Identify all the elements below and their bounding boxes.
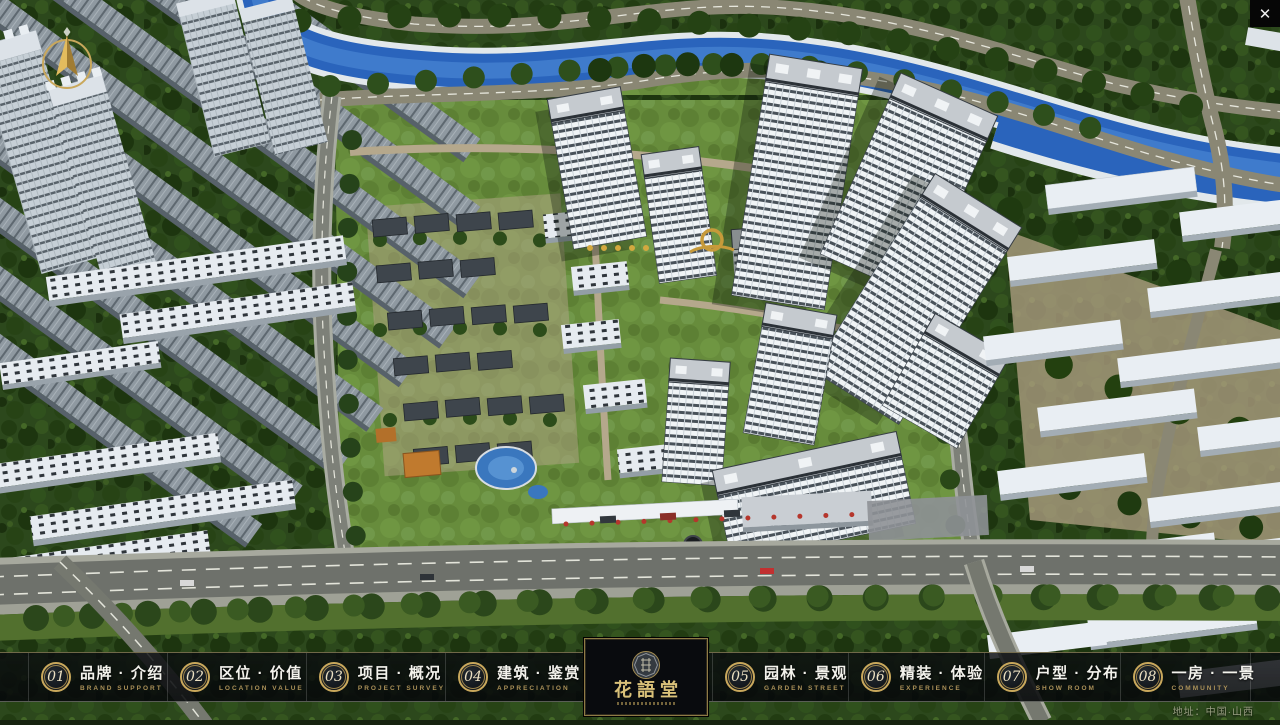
masterplan-3d-render[interactable] [0,0,1280,720]
logo-tagline-decoration [617,702,675,705]
nav-item-architecture[interactable]: 04 建筑 · 鉴赏 APPRECIATION [445,653,584,701]
logo-seal-icon [631,650,661,680]
nav-title: 区位 · 价值 [219,662,304,683]
nav-group-right: 05 园林 · 景观 GARDEN STREET 06 精装 · 体验 EXPE… [712,653,1251,701]
nav-number-badge: 07 [997,662,1027,692]
nav-title: 一房 · 一景 [1172,662,1256,683]
nav-item-experience[interactable]: 06 精装 · 体验 EXPERIENCE [848,653,984,701]
nav-title: 户型 · 分布 [1036,662,1120,683]
project-address: 地址：中国·山西 [1173,703,1254,718]
close-icon: ✕ [1259,5,1272,23]
project-logo-name: 花語堂 [609,682,683,700]
nav-subtitle: SHOW ROOM [1036,685,1120,692]
nav-number-badge: 01 [41,662,71,692]
nav-title: 园林 · 景观 [764,662,848,683]
nav-title: 品牌 · 介绍 [80,662,164,683]
nav-item-room-view[interactable]: 08 一房 · 一景 COMMUNITY [1120,653,1256,701]
nav-number-badge: 06 [861,662,891,692]
nav-item-floorplans[interactable]: 07 户型 · 分布 SHOW ROOM [984,653,1120,701]
nav-number-badge: 02 [180,662,210,692]
nav-subtitle: APPRECIATION [497,685,581,692]
nav-item-project-survey[interactable]: 03 项目 · 概况 PROJECT SURVEY [306,653,445,701]
nav-number-badge: 08 [1133,662,1163,692]
nav-number-badge: 05 [725,662,755,692]
site-plan-graphic [0,0,1280,720]
close-button[interactable]: ✕ [1250,0,1280,27]
nav-number-badge: 03 [319,662,349,692]
nav-subtitle: LOCATION VALUE [219,685,304,692]
nav-item-garden-landscape[interactable]: 05 园林 · 景观 GARDEN STREET [712,653,848,701]
nav-subtitle: EXPERIENCE [900,685,984,692]
nav-title: 建筑 · 鉴赏 [497,662,581,683]
nav-title: 项目 · 概况 [358,662,445,683]
nav-item-brand-intro[interactable]: 01 品牌 · 介绍 BRAND SUPPORT [28,653,167,701]
nav-subtitle: GARDEN STREET [764,685,848,692]
project-logo-panel[interactable]: 花語堂 [584,638,708,716]
nav-number-badge: 04 [458,662,488,692]
nav-subtitle: COMMUNITY [1172,685,1256,692]
nav-subtitle: PROJECT SURVEY [358,685,445,692]
nav-group-left: 01 品牌 · 介绍 BRAND SUPPORT 02 区位 · 价值 LOCA… [28,653,585,701]
nav-title: 精装 · 体验 [900,662,984,683]
bottom-navigation-bar: 01 品牌 · 介绍 BRAND SUPPORT 02 区位 · 价值 LOCA… [0,652,1280,702]
nav-subtitle: BRAND SUPPORT [80,685,164,692]
nav-item-location-value[interactable]: 02 区位 · 价值 LOCATION VALUE [167,653,306,701]
